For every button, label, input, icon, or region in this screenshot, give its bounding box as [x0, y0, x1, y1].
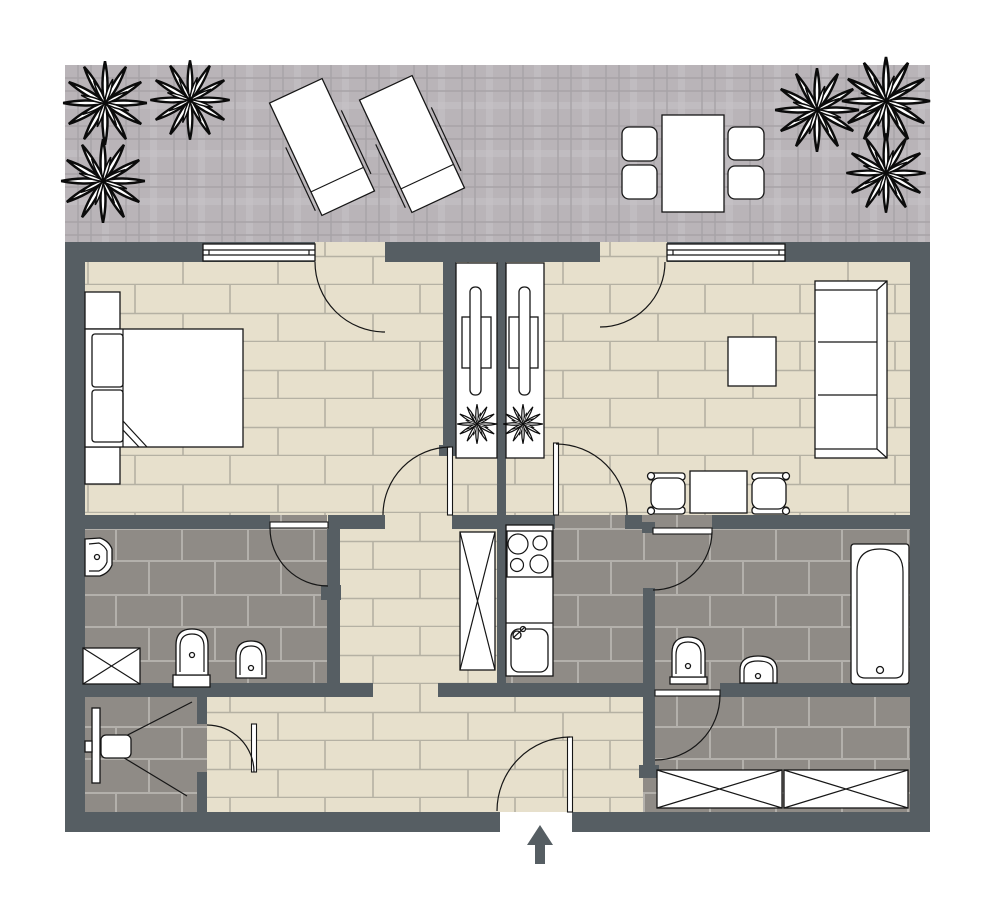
wall-top	[65, 242, 930, 262]
tv-niche-left	[456, 263, 497, 458]
chair-icon	[728, 166, 764, 199]
floor-plan-drawing	[0, 0, 991, 916]
armchair	[752, 473, 790, 515]
shower-head-icon	[101, 735, 131, 758]
washbasin-icon	[740, 656, 777, 683]
washing-machine-icon	[83, 648, 140, 684]
toilet-icon	[173, 629, 210, 687]
tall-cabinet-icon	[460, 532, 495, 670]
bathtub-icon	[851, 544, 909, 684]
wardrobe-box-icon	[784, 770, 908, 808]
pillow	[92, 390, 123, 442]
washbasin-icon	[85, 538, 112, 576]
tv-niche-right	[503, 263, 544, 458]
stove-4-burner-icon	[507, 531, 552, 577]
window-bedroom	[203, 244, 315, 261]
window-living-room	[667, 244, 785, 261]
tv-screen	[519, 287, 530, 395]
armchair	[648, 473, 686, 515]
terrace-door-threshold-living	[600, 242, 667, 262]
bidet-icon	[236, 641, 266, 678]
chair-icon	[622, 127, 657, 161]
floor-plan-page	[0, 0, 991, 916]
toilet-icon	[670, 637, 707, 684]
wall-right	[910, 262, 930, 812]
pillow	[92, 334, 123, 387]
storage-room-furniture	[657, 770, 908, 808]
dining-table-icon	[662, 115, 724, 212]
terrace-door-threshold-bedroom	[315, 242, 385, 262]
tv-screen	[470, 287, 481, 395]
nightstand	[85, 447, 120, 484]
shower-rail	[92, 708, 100, 783]
chair-icon	[728, 127, 764, 160]
desk-table	[690, 471, 747, 513]
entrance-threshold	[500, 812, 572, 832]
wall-bottom	[65, 812, 930, 832]
wall-left	[65, 262, 85, 812]
kitchen-fixtures	[460, 525, 553, 676]
sofa	[815, 281, 887, 458]
coffee-table	[728, 337, 776, 386]
chair-icon	[622, 165, 657, 199]
nightstand	[85, 292, 120, 329]
wardrobe-box-icon	[657, 770, 782, 808]
